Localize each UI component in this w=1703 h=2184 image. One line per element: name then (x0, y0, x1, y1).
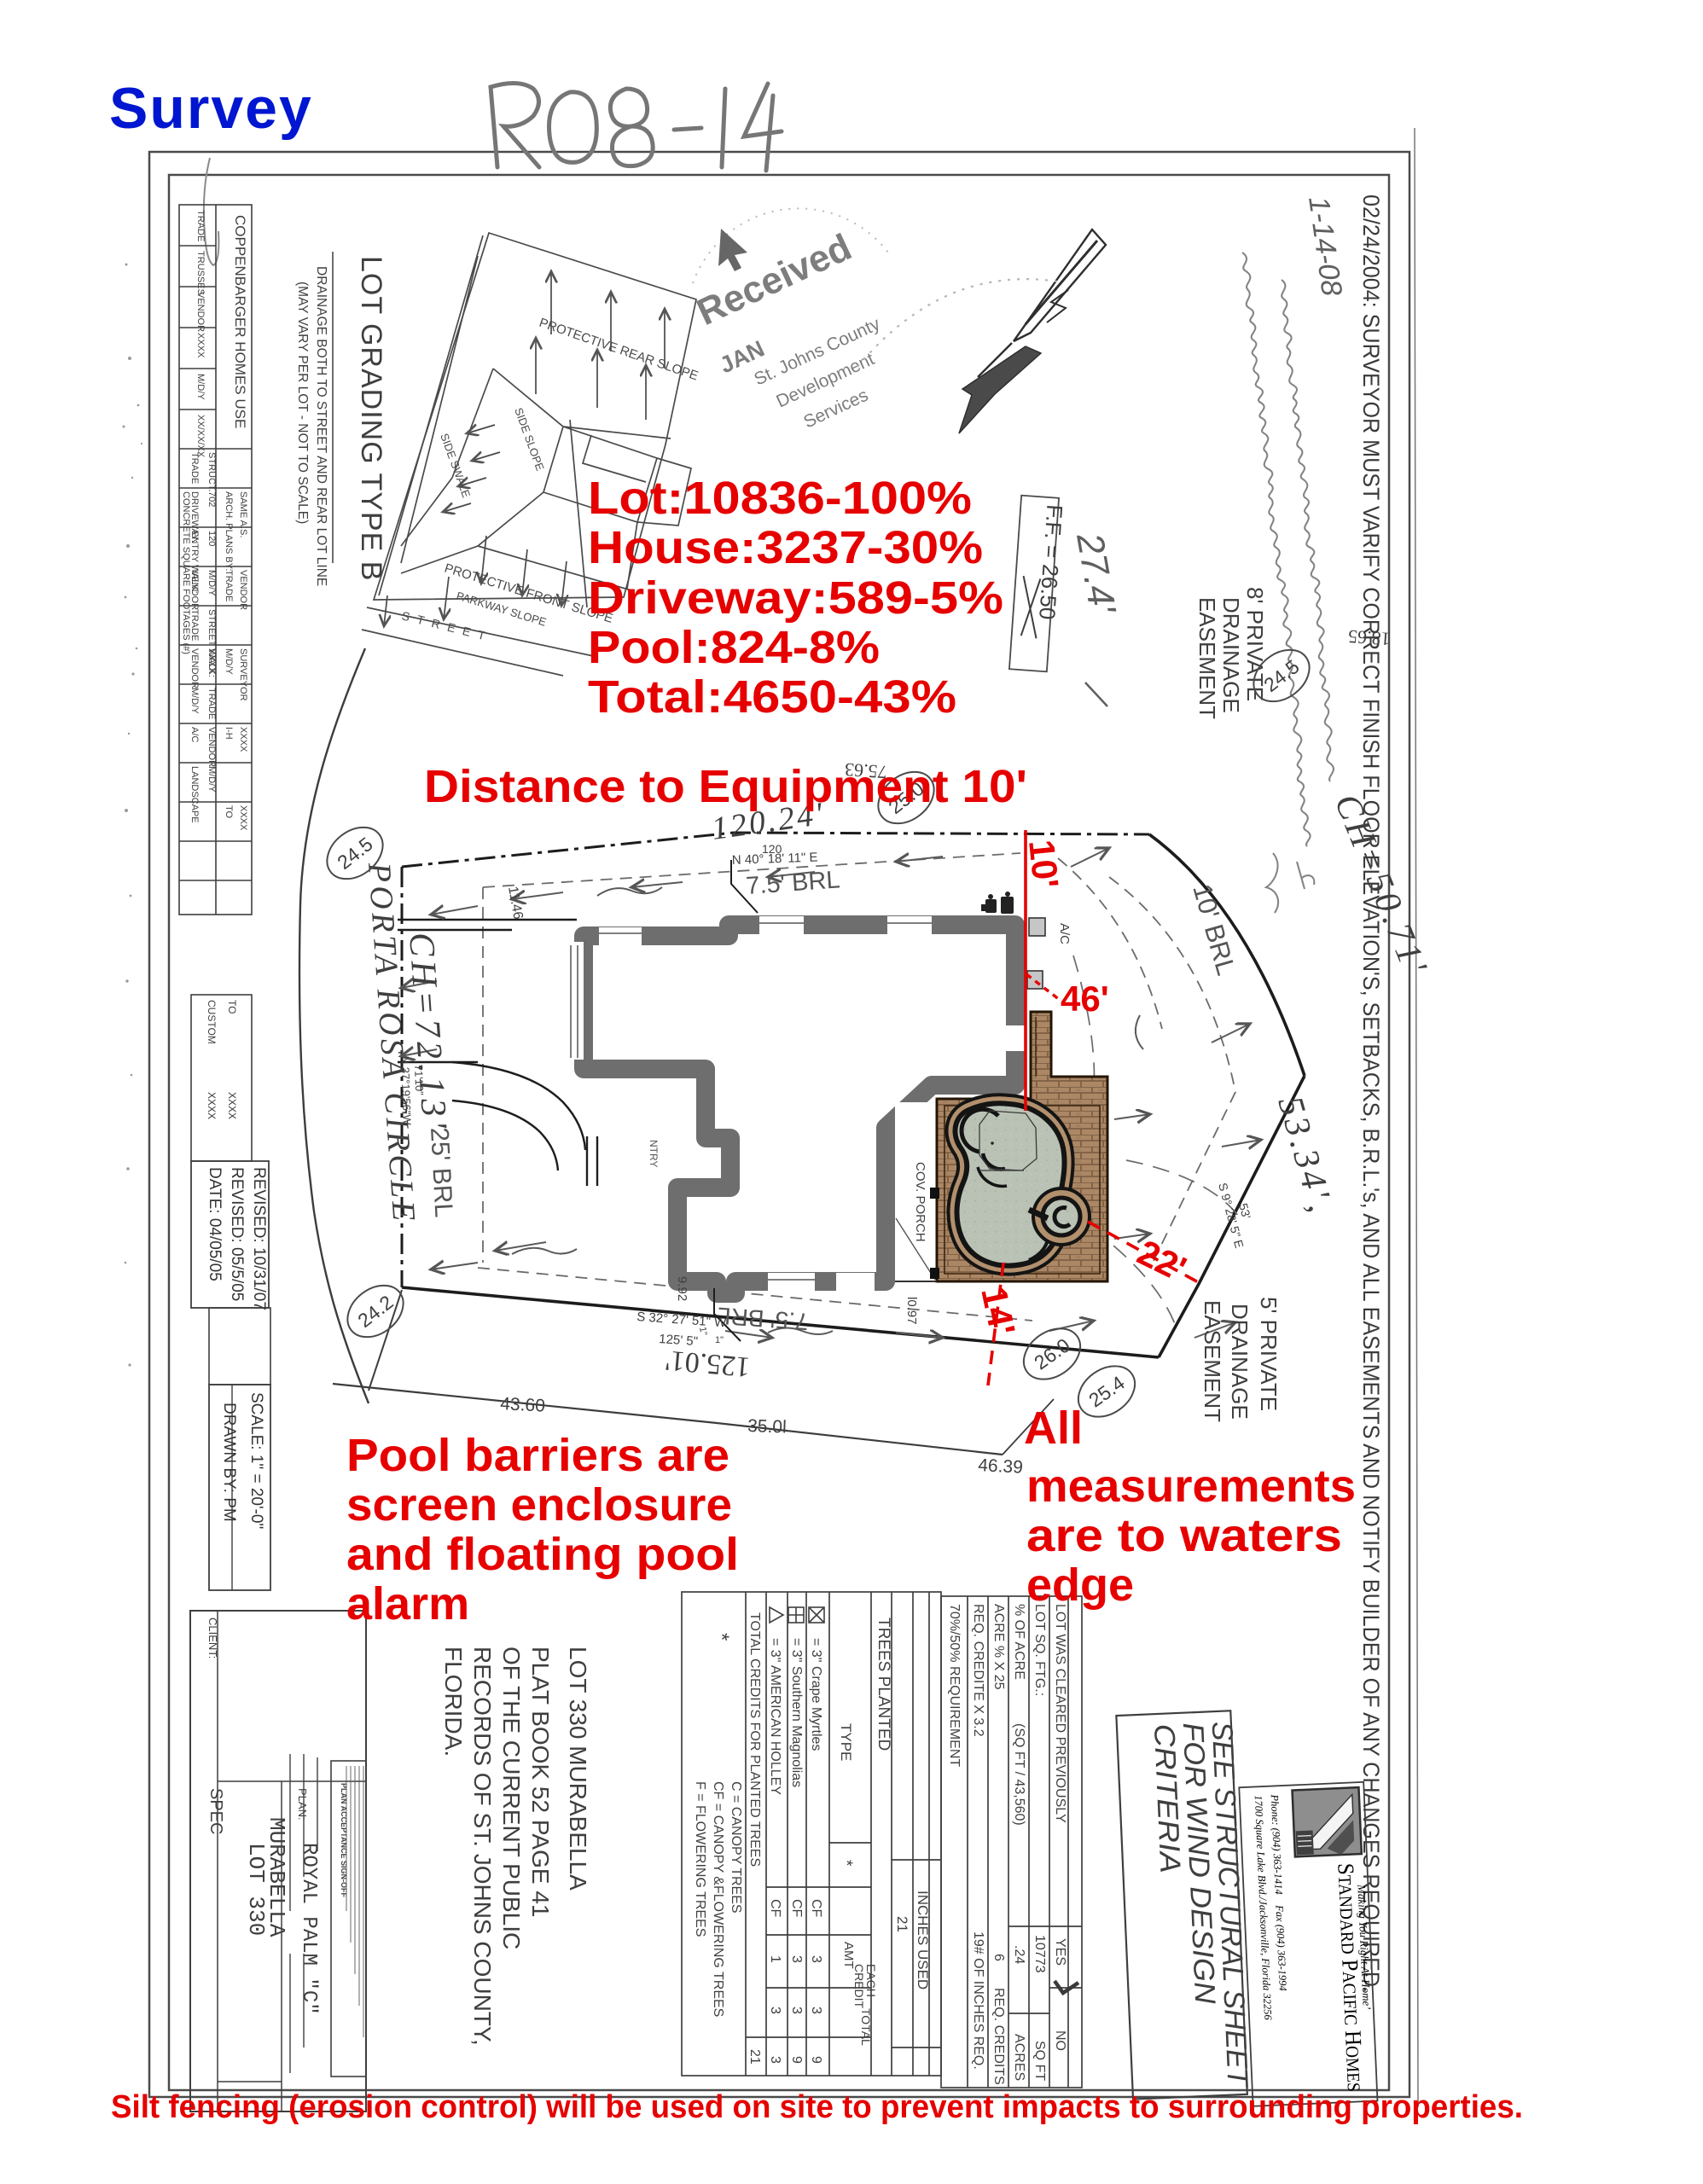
svg-text:measurements: measurements (1026, 1461, 1356, 1512)
svg-text:STRUCT.: STRUCT. (206, 452, 217, 491)
svg-text:Pool barriers are: Pool barriers are (346, 1430, 729, 1481)
svg-text:10': 10' (1021, 838, 1067, 890)
svg-text:F = FLOWERING TREES: F = FLOWERING TREES (693, 1781, 707, 1937)
svg-text:REVISED: 05/5/05: REVISED: 05/5/05 (228, 1167, 246, 1301)
svg-text:TRADE: TRADE (189, 609, 200, 641)
svg-text:CF: CF (789, 1899, 804, 1918)
svg-text:I-H: I-H (224, 727, 234, 740)
svg-text:70%/50% REQUIREMENT: 70%/50% REQUIREMENT (947, 1604, 962, 1767)
svg-text:% OF ACRE: % OF ACRE (1012, 1604, 1026, 1680)
svg-text:EASEMENT: EASEMENT (1200, 1300, 1225, 1422)
svg-text:DRAINAGE BOTH TO STREET AND RE: DRAINAGE BOTH TO STREET AND REAR LOT LIN… (314, 266, 328, 586)
svg-text:alarm: alarm (346, 1578, 469, 1629)
svg-text:LOT GRADING TYPE B: LOT GRADING TYPE B (355, 256, 387, 581)
svg-text:21: 21 (894, 1916, 910, 1932)
svg-text:COPPENBARGER HOMES USE: COPPENBARGER HOMES USE (232, 215, 248, 428)
svg-text:TO: TO (224, 805, 234, 819)
svg-text:TRADE: TRADE (224, 570, 234, 601)
svg-text:35.0l: 35.0l (747, 1416, 787, 1438)
svg-text:702: 702 (206, 491, 217, 507)
svg-text:CF = CANOPY &FLOWERING TREES: CF = CANOPY &FLOWERING TREES (711, 1781, 725, 2017)
svg-text:DRAINAGE: DRAINAGE (1227, 1304, 1253, 1420)
svg-text:19# OF INCHES REQ.: 19# OF INCHES REQ. (971, 1931, 985, 2070)
svg-text:COV. PORCH: COV. PORCH (913, 1162, 927, 1242)
svg-text:*: * (837, 1860, 855, 1867)
svg-text:N 40° 18' 11" E: N 40° 18' 11" E (732, 850, 818, 868)
svg-text:INCHES USED: INCHES USED (915, 1891, 931, 1989)
svg-text:3: 3 (768, 2056, 782, 2064)
svg-text:DRAWN BY: PM: DRAWN BY: PM (220, 1403, 238, 1522)
svg-text:(SQ FT / 43,560): (SQ FT / 43,560) (1012, 1723, 1026, 1826)
svg-text:Pool:824-8%: Pool:824-8% (588, 622, 880, 673)
svg-text:TOTAL CREDITS FOR PLANTED TREE: TOTAL CREDITS FOR PLANTED TREES (747, 1612, 762, 1867)
svg-text:screen enclosure: screen enclosure (346, 1479, 732, 1531)
svg-text:A/C: A/C (189, 727, 200, 742)
svg-text:M/D/Y: M/D/Y (206, 766, 217, 793)
svg-text:Survey: Survey (109, 76, 313, 141)
svg-text:CLIENT:: CLIENT: (206, 1618, 219, 1658)
svg-text:TRUSSES: TRUSSES (195, 251, 206, 295)
svg-text:N 37°19'56"W: N 37°19'56"W (398, 1056, 414, 1126)
svg-text:1": 1" (715, 1335, 724, 1345)
svg-text:*: * (710, 1633, 733, 1641)
svg-text:= 3" Crape Myrtles: = 3" Crape Myrtles (809, 1638, 823, 1751)
svg-text:(MAY VARY PER LOT - NOT TO S: (MAY VARY PER LOT - NOT TO SCALE) (295, 282, 310, 524)
svg-text:02/24/2004: SURVEYOR MUST VARI: 02/24/2004: SURVEYOR MUST VARIFY CORRECT… (1358, 195, 1384, 1993)
svg-text:M/D/Y: M/D/Y (206, 570, 217, 596)
svg-text:SURVEYOR: SURVEYOR (238, 648, 248, 701)
svg-text:3: 3 (789, 2007, 804, 2014)
svg-text:LANDSCAPE: LANDSCAPE (189, 766, 200, 823)
svg-text:SPEC: SPEC (206, 1788, 225, 1834)
svg-text:125' 5": 125' 5" (659, 1332, 699, 1349)
svg-text:FLORIDA.: FLORIDA. (440, 1647, 467, 1757)
svg-text:SAME A.S.: SAME A.S. (238, 491, 248, 537)
svg-text:edge: edge (1026, 1560, 1134, 1611)
svg-text:3: 3 (789, 1955, 804, 1963)
svg-text:XXXX: XXXX (195, 333, 206, 358)
svg-text:46.39: 46.39 (978, 1455, 1024, 1478)
svg-text:21: 21 (747, 2049, 762, 2065)
svg-text:25' BRL: 25' BRL (425, 1127, 457, 1218)
svg-text:LOT SQ. FTG.:: LOT SQ. FTG.: (1032, 1604, 1047, 1696)
svg-text:VENDOR: VENDOR (189, 648, 200, 688)
svg-text:43.60: 43.60 (500, 1394, 546, 1416)
svg-text:ARCH. PLANS BY:: ARCH. PLANS BY: (224, 491, 234, 572)
svg-text:Silt fencing (erosion control): Silt fencing (erosion control) will be u… (111, 2089, 1523, 2125)
svg-text:Lot:10836-100%: Lot:10836-100% (588, 473, 972, 524)
svg-text:VENDOR: VENDOR (195, 292, 206, 332)
svg-text:XXXX: XXXX (206, 648, 217, 674)
svg-text:3: 3 (809, 2007, 823, 2014)
svg-text:PLAT BOOK 52 PAGE 41: PLAT BOOK 52 PAGE 41 (527, 1647, 554, 1918)
svg-text:DATE: 04/05/05: DATE: 04/05/05 (206, 1167, 224, 1281)
svg-text:TOTAL: TOTAL (859, 2008, 873, 2046)
svg-text:MURABELLA: MURABELLA (264, 1817, 289, 1937)
svg-text:18.65: 18.65 (1347, 626, 1391, 650)
svg-text:TRADE: TRADE (195, 210, 206, 241)
svg-text:XXXX: XXXX (206, 1092, 218, 1119)
svg-text:OF THE CURRENT PUBLIC: OF THE CURRENT PUBLIC (498, 1647, 525, 1949)
svg-text:CF: CF (809, 1899, 823, 1918)
svg-text:= 3" Southern Magnolias: = 3" Southern Magnolias (789, 1638, 804, 1787)
svg-text:SQ FT: SQ FT (1032, 2041, 1047, 2081)
svg-text:TO: TO (226, 1000, 238, 1014)
svg-text:l0.97: l0.97 (904, 1297, 919, 1325)
svg-text:are to waters: are to waters (1026, 1510, 1342, 1561)
svg-text:REQ. CREDITS: REQ. CREDITS (991, 1988, 1006, 2085)
svg-text:M/D/Y: M/D/Y (224, 648, 234, 675)
svg-text:CRITERIA: CRITERIA (1148, 1723, 1187, 1873)
svg-text:1: 1 (768, 1955, 782, 1963)
svg-text:PLAN:: PLAN: (296, 1788, 309, 1821)
svg-text:EACH: EACH (864, 1964, 878, 1997)
svg-text:10773: 10773 (1032, 1935, 1047, 1973)
svg-text:DRAINAGE: DRAINAGE (1218, 597, 1244, 713)
svg-text:Total:4650-43%: Total:4650-43% (588, 671, 956, 723)
svg-text:71'10": 71'10" (412, 1065, 426, 1096)
svg-text:and floating pool: and floating pool (346, 1529, 739, 1580)
svg-text:CF: CF (768, 1899, 782, 1918)
svg-text:All: All (1024, 1403, 1083, 1454)
svg-text:XXXX: XXXX (238, 727, 248, 752)
svg-text:REQ. CREDITE X 3.2: REQ. CREDITE X 3.2 (971, 1604, 985, 1737)
svg-text:XXXX: XXXX (226, 1092, 238, 1119)
svg-text:TRADE: TRADE (189, 452, 200, 484)
svg-text:REVISED: 10/31/07: REVISED: 10/31/07 (250, 1167, 268, 1310)
svg-text:EASEMENT: EASEMENT (1194, 597, 1220, 719)
svg-text:LOT 330 MURABELLA: LOT 330 MURABELLA (565, 1647, 591, 1891)
svg-text:ACRES: ACRES (1012, 2034, 1026, 2081)
svg-text:= 3" AMERICAN HOLLEY: = 3" AMERICAN HOLLEY (768, 1638, 782, 1795)
svg-text:NO: NO (1053, 2030, 1067, 2051)
svg-text:5' PRIVATE: 5' PRIVATE (1256, 1297, 1282, 1411)
svg-text:CUSTOM: CUSTOM (206, 1000, 218, 1044)
svg-text:C = CANOPY TREES: C = CANOPY TREES (729, 1781, 743, 1914)
svg-text:VENDOR: VENDOR (238, 570, 248, 610)
svg-text:Driveway:589-5%: Driveway:589-5% (588, 572, 1003, 624)
svg-text:.24: .24 (1012, 1945, 1026, 1964)
svg-text:9: 9 (789, 2056, 804, 2064)
svg-text:ROYAL PALM "C": ROYAL PALM "C" (297, 1843, 320, 2015)
svg-text:XXXX: XXXX (238, 805, 248, 831)
svg-text:TYPE: TYPE (838, 1723, 854, 1761)
svg-text:6: 6 (991, 1954, 1006, 1961)
svg-text:M/D/Y: M/D/Y (195, 374, 206, 400)
svg-text:House:3237-30%: House:3237-30% (588, 522, 983, 573)
svg-text:120: 120 (206, 531, 217, 546)
svg-text:Distance to Equipment 10': Distance to Equipment 10' (424, 761, 1027, 812)
svg-text:46': 46' (1061, 979, 1109, 1019)
svg-text:M/D/Y: M/D/Y (189, 688, 200, 714)
svg-text:YES: YES (1053, 1938, 1067, 1966)
svg-text:TREES PLANTED: TREES PLANTED (875, 1618, 892, 1751)
svg-text:RECORDS OF ST. JOHNS COUNTY,: RECORDS OF ST. JOHNS COUNTY, (469, 1647, 496, 2046)
svg-text:TRADE: TRADE (206, 688, 217, 719)
svg-text:VENDOR: VENDOR (206, 727, 217, 767)
svg-text:PLAN ACCEPTANCE SIGN-OFF: PLAN ACCEPTANCE SIGN-OFF (340, 1783, 348, 1898)
svg-text:9: 9 (809, 2056, 823, 2064)
svg-text:ACRE % X 25: ACRE % X 25 (991, 1604, 1006, 1690)
svg-text:A/C: A/C (1057, 923, 1072, 944)
svg-text:3: 3 (768, 2007, 782, 2014)
svg-text:NTRY: NTRY (648, 1140, 660, 1167)
svg-text:9.92: 9.92 (675, 1276, 689, 1301)
svg-text:CREDIT: CREDIT (852, 1964, 866, 2009)
svg-text:LOT WAS CLEARED PREVIOUSLY: LOT WAS CLEARED PREVIOUSLY (1053, 1604, 1067, 1823)
svg-text:3: 3 (809, 1955, 823, 1963)
svg-text:VENDOR: VENDOR (189, 570, 200, 610)
svg-text:SCALE: 1" = 20'-0": SCALE: 1" = 20'-0" (247, 1392, 265, 1529)
